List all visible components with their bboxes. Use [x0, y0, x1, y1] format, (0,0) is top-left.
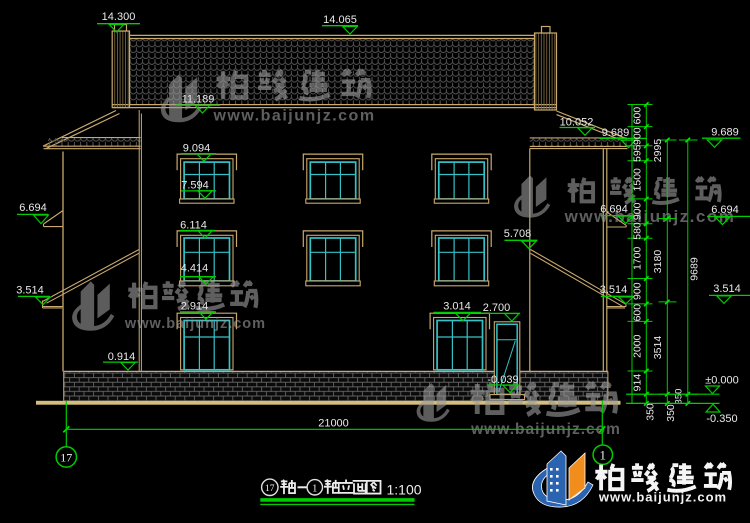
svg-text:2.914: 2.914 [181, 301, 209, 313]
svg-text:14.300: 14.300 [102, 11, 136, 23]
svg-text:3.014: 3.014 [443, 300, 471, 312]
svg-text:±0.000: ±0.000 [705, 375, 739, 387]
svg-text:6.694: 6.694 [711, 204, 739, 216]
svg-text:2995: 2995 [652, 139, 664, 163]
svg-text:www.baijunjz.com: www.baijunjz.com [212, 108, 375, 125]
svg-text:9.689: 9.689 [711, 127, 739, 139]
svg-text:2.700: 2.700 [483, 302, 511, 314]
svg-text:11.189: 11.189 [182, 93, 215, 105]
svg-text:900: 900 [632, 202, 644, 220]
svg-text:3.514: 3.514 [16, 284, 44, 296]
svg-text:2000: 2000 [632, 334, 644, 358]
svg-text:9.094: 9.094 [183, 142, 211, 154]
svg-text:0.914: 0.914 [108, 351, 136, 363]
svg-text:595: 595 [632, 144, 644, 162]
svg-text:www.baijunjz.com: www.baijunjz.com [598, 490, 727, 505]
svg-text:600: 600 [632, 304, 644, 322]
svg-text:3.514: 3.514 [713, 283, 741, 295]
svg-text:14.065: 14.065 [323, 14, 357, 26]
svg-text:5.708: 5.708 [504, 228, 532, 240]
svg-text:www.baijunjz.com: www.baijunjz.com [124, 316, 266, 332]
svg-text:1: 1 [312, 483, 317, 494]
svg-text:1500: 1500 [632, 168, 644, 192]
svg-text:21000: 21000 [318, 417, 349, 429]
svg-text:600: 600 [632, 107, 644, 125]
svg-text:580: 580 [632, 222, 644, 240]
svg-text:-0.350: -0.350 [706, 413, 737, 425]
svg-text:900: 900 [632, 127, 644, 145]
svg-text:7.594: 7.594 [181, 180, 209, 192]
svg-text:3.514: 3.514 [600, 284, 628, 296]
svg-text:3180: 3180 [652, 250, 664, 274]
svg-text:4.414: 4.414 [181, 263, 209, 275]
svg-text:1: 1 [600, 447, 607, 462]
svg-text:9.689: 9.689 [602, 127, 630, 139]
svg-text:9689: 9689 [689, 257, 701, 281]
svg-text:914: 914 [632, 374, 644, 392]
svg-text:17: 17 [265, 484, 275, 494]
svg-text:6.114: 6.114 [180, 219, 207, 231]
svg-text:900: 900 [632, 282, 644, 300]
svg-text:6.694: 6.694 [600, 204, 628, 216]
svg-text:350: 350 [665, 404, 677, 422]
svg-text:6.694: 6.694 [19, 202, 47, 214]
svg-text:-0.039: -0.039 [487, 374, 518, 386]
svg-text:350: 350 [645, 403, 657, 421]
svg-text:1700: 1700 [632, 247, 644, 271]
svg-text:350: 350 [674, 389, 685, 405]
svg-text:10.052: 10.052 [560, 116, 594, 128]
svg-text:1:100: 1:100 [387, 482, 422, 498]
svg-text:17: 17 [60, 450, 72, 464]
svg-text:3514: 3514 [652, 336, 664, 360]
